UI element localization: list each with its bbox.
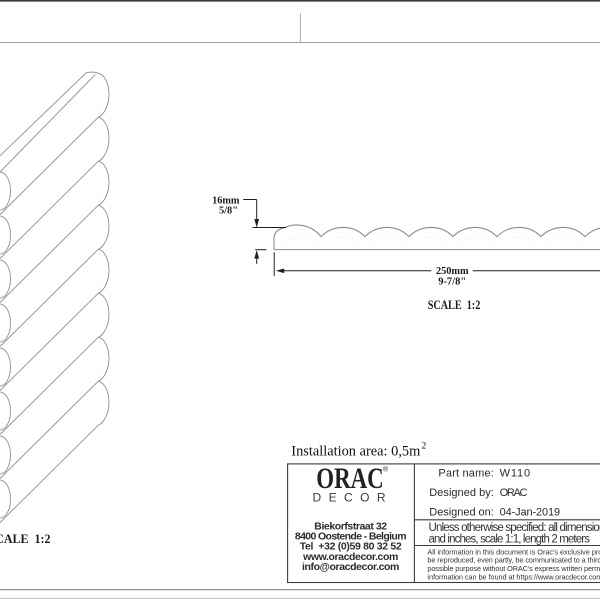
svg-text:2: 2 xyxy=(422,442,427,452)
svg-text:04-Jan-2019: 04-Jan-2019 xyxy=(500,507,560,519)
svg-text:SCALE 1:2: SCALE 1:2 xyxy=(0,531,51,546)
svg-text:5/8": 5/8" xyxy=(219,204,238,216)
svg-text:®: ® xyxy=(383,466,389,474)
svg-text:Designed on:: Designed on: xyxy=(429,507,494,519)
svg-text:Unless otherwise specified: al: Unless otherwise specified: all dimensio… xyxy=(429,522,600,534)
svg-text:9-7/8": 9-7/8" xyxy=(438,275,466,287)
svg-text:Designed by:: Designed by: xyxy=(429,487,494,499)
svg-text:info@oracdecor.com: info@oracdecor.com xyxy=(302,561,399,573)
svg-text:ORAC: ORAC xyxy=(500,487,528,499)
svg-text:SCALE 1:2: SCALE 1:2 xyxy=(428,297,481,312)
svg-text:W110: W110 xyxy=(500,467,530,479)
svg-text:and inches, scale 1:1, length: and inches, scale 1:1, length 2 meters xyxy=(429,534,591,546)
svg-text:information can be found at ht: information can be found at https://www.… xyxy=(427,573,600,582)
svg-text:Installation area: 0,5m: Installation area: 0,5m xyxy=(291,444,421,460)
svg-text:Part name:: Part name: xyxy=(438,467,493,479)
